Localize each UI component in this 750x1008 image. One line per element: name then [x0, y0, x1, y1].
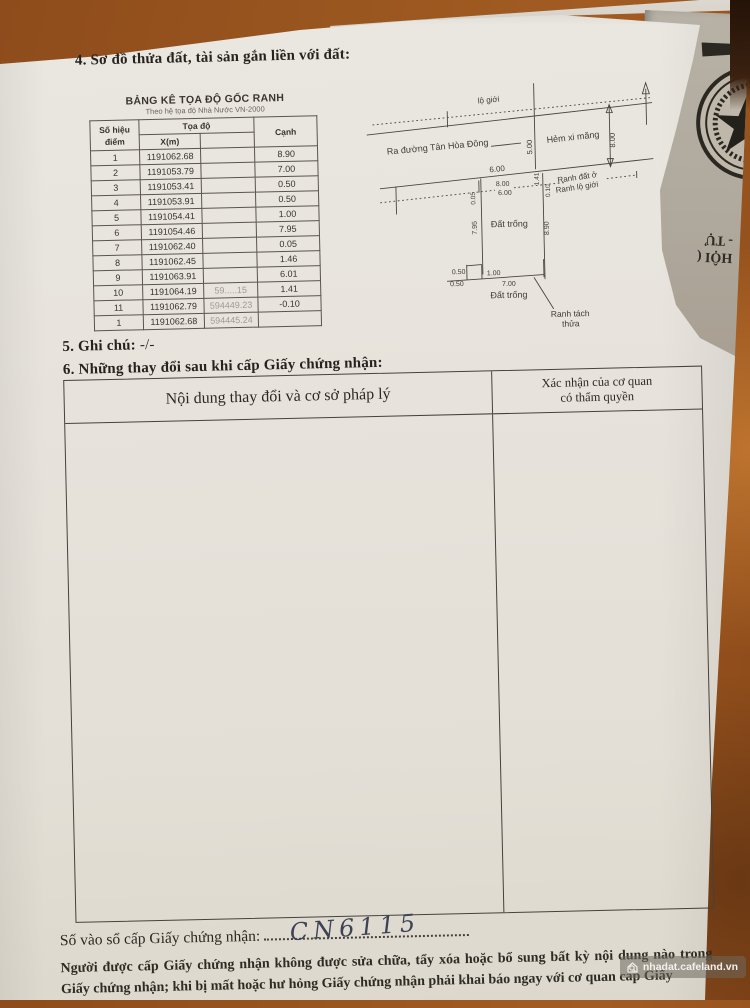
- dim-8-90: 8.90: [544, 221, 551, 235]
- dim-6-00: 6.00: [489, 164, 506, 174]
- coord-cell-edge: [258, 311, 321, 327]
- coord-cell-edge: 7.95: [256, 221, 319, 237]
- coord-cell-x: 1191053.41: [140, 178, 201, 194]
- coord-cell-edge: 0.05: [257, 236, 320, 252]
- changes-col2-header-line2: có thẩm quyền: [560, 389, 634, 406]
- coord-cell-y: [202, 222, 256, 238]
- coord-cell-y: 594445.24: [204, 312, 258, 328]
- coord-cell-edge: 7.00: [255, 161, 318, 177]
- coord-cell-edge: 1.00: [256, 206, 319, 222]
- coord-cell-edge: 0.50: [256, 191, 319, 207]
- coord-table-body: 11191062.688.9021191053.797.0031191053.4…: [91, 146, 322, 331]
- section5-label: 5. Ghi chú:: [62, 337, 136, 355]
- coord-cell-edge: 8.90: [254, 146, 317, 162]
- coord-cell-point: 10: [94, 285, 143, 301]
- dim-7-00: 7.00: [502, 281, 516, 288]
- dim-1-41: 1.41: [534, 172, 541, 185]
- coord-cell-x: 1191062.68: [143, 313, 204, 329]
- coord-cell-x: 1191053.79: [140, 163, 201, 179]
- changes-col2-header-line1: Xác nhận của cơ quan: [541, 374, 652, 392]
- lo-gioi-dotted-line: [372, 98, 650, 125]
- serial-label: Số vào sổ cấp Giấy chứng nhận:: [60, 928, 261, 950]
- coord-cell-point: 4: [92, 195, 141, 211]
- changes-table-body: [65, 410, 713, 922]
- coord-cell-y: [201, 177, 255, 193]
- coord-cell-x: 1191054.46: [141, 223, 202, 239]
- section4-title: 4. Sơ đồ thửa đất, tài sản gắn liền với …: [75, 46, 351, 69]
- dim-0-50-b: 0.50: [450, 281, 464, 288]
- changes-table: Nội dung thay đổi và cơ sở pháp lý Xác n…: [63, 366, 714, 923]
- coord-cell-point: 11: [94, 300, 143, 316]
- coord-cell-y: [203, 252, 257, 268]
- coord-cell-x: 1191054.41: [141, 208, 202, 224]
- coord-cell-y: 59.....15: [204, 282, 258, 298]
- coord-cell-edge: 1.41: [258, 281, 321, 297]
- coord-cell-point: 9: [93, 270, 142, 286]
- watermark-badge: nhadat.cafeland.vn: [620, 956, 746, 978]
- dim-0-50-a: 0.50: [452, 269, 466, 276]
- ranh-tach-label: Ranh tách: [551, 308, 590, 319]
- changes-col1-cell: [65, 414, 504, 922]
- coord-cell-point: 6: [92, 225, 141, 241]
- coord-header-y: [200, 132, 254, 148]
- coord-cell-x: 1191062.45: [142, 253, 203, 269]
- coord-cell-point: 5: [92, 210, 141, 226]
- coord-cell-edge: 6.01: [257, 266, 320, 282]
- coord-cell-point: 1: [94, 315, 143, 331]
- coord-cell-y: 594449.23: [204, 297, 258, 313]
- dim-5-00: 5.00: [525, 140, 534, 155]
- coord-cell-x: 1191064.19: [143, 283, 204, 299]
- coord-cell-y: [202, 207, 256, 223]
- street-label: Ra đường Tân Hòa Đông: [386, 137, 488, 156]
- dim-0-10: 0.10: [545, 184, 552, 197]
- dat-trong-lower-label: Đất trống: [490, 289, 527, 300]
- dim-8-00-mid: 8.00: [496, 181, 510, 188]
- document-photo: { "page": { "section4_title": "4. Sơ đồ …: [0, 0, 750, 1000]
- coord-table: Số hiệu điểm Tọa độ Cạnh X(m) 11191062.6…: [89, 115, 322, 331]
- coord-cell-y: [203, 237, 257, 253]
- changes-col2-cell: [493, 410, 713, 913]
- lo-gioi-label: lộ giới: [477, 95, 500, 106]
- coord-cell-edge: 1.46: [257, 251, 320, 267]
- dim-0-05: 0.05: [470, 192, 477, 205]
- thua-label: thửa: [562, 318, 580, 328]
- coord-cell-x: 1191053.91: [141, 193, 202, 209]
- paper-content: 4. Sơ đồ thửa đất, tài sản gắn liền với …: [0, 0, 750, 1008]
- coord-cell-y: [201, 192, 255, 208]
- coord-cell-y: [200, 147, 254, 163]
- dim-1-00: 1.00: [487, 270, 501, 277]
- house-search-icon: [626, 961, 639, 974]
- cadastral-sketch: lộ giới Ra đường Tân Hòa Đông 5.00 Hẻm x…: [350, 78, 666, 335]
- coord-cell-point: 2: [91, 165, 140, 181]
- dim-8-00-right: 8.00: [608, 133, 617, 148]
- footer-paragraph: Người được cấp Giấy chứng nhận không đượ…: [60, 943, 713, 1000]
- section5-line: 5. Ghi chú: -/-: [62, 337, 155, 356]
- coord-cell-x: 1191062.68: [139, 148, 200, 164]
- watermark-text: nhadat.cafeland.vn: [643, 961, 738, 973]
- coord-header-edge: Cạnh: [254, 116, 318, 147]
- coord-cell-edge: -0.10: [258, 296, 321, 312]
- coord-cell-y: [201, 162, 255, 178]
- coord-cell-point: 7: [93, 240, 142, 256]
- coord-cell-x: 1191062.79: [143, 298, 204, 314]
- alley-label: Hẻm xi măng: [546, 129, 600, 145]
- coord-cell-point: 8: [93, 255, 142, 271]
- coord-cell-edge: 0.50: [255, 176, 318, 192]
- coord-cell-point: 3: [91, 180, 140, 196]
- coord-cell-point: 1: [91, 150, 140, 166]
- coord-header-point: Số hiệu điểm: [90, 120, 140, 151]
- coord-cell-x: 1191062.40: [142, 238, 203, 254]
- serial-line: Số vào sổ cấp Giấy chứng nhận: CN6115: [60, 919, 470, 950]
- coord-header-x: X(m): [139, 133, 200, 149]
- section5-value: -/-: [140, 337, 155, 353]
- dim-6-00-mid: 6.00: [498, 190, 512, 197]
- coord-cell-y: [203, 267, 257, 283]
- dim-7-95: 7.95: [472, 221, 479, 235]
- dat-trong-upper-label: Đất trống: [491, 218, 528, 229]
- changes-col2-header: Xác nhận của cơ quan có thẩm quyền: [492, 367, 702, 414]
- coord-cell-x: 1191063.91: [142, 268, 203, 284]
- coordinate-table-block: BẢNG KÊ TỌA ĐỘ GỐC RANH Theo hệ tọa độ N…: [89, 91, 326, 331]
